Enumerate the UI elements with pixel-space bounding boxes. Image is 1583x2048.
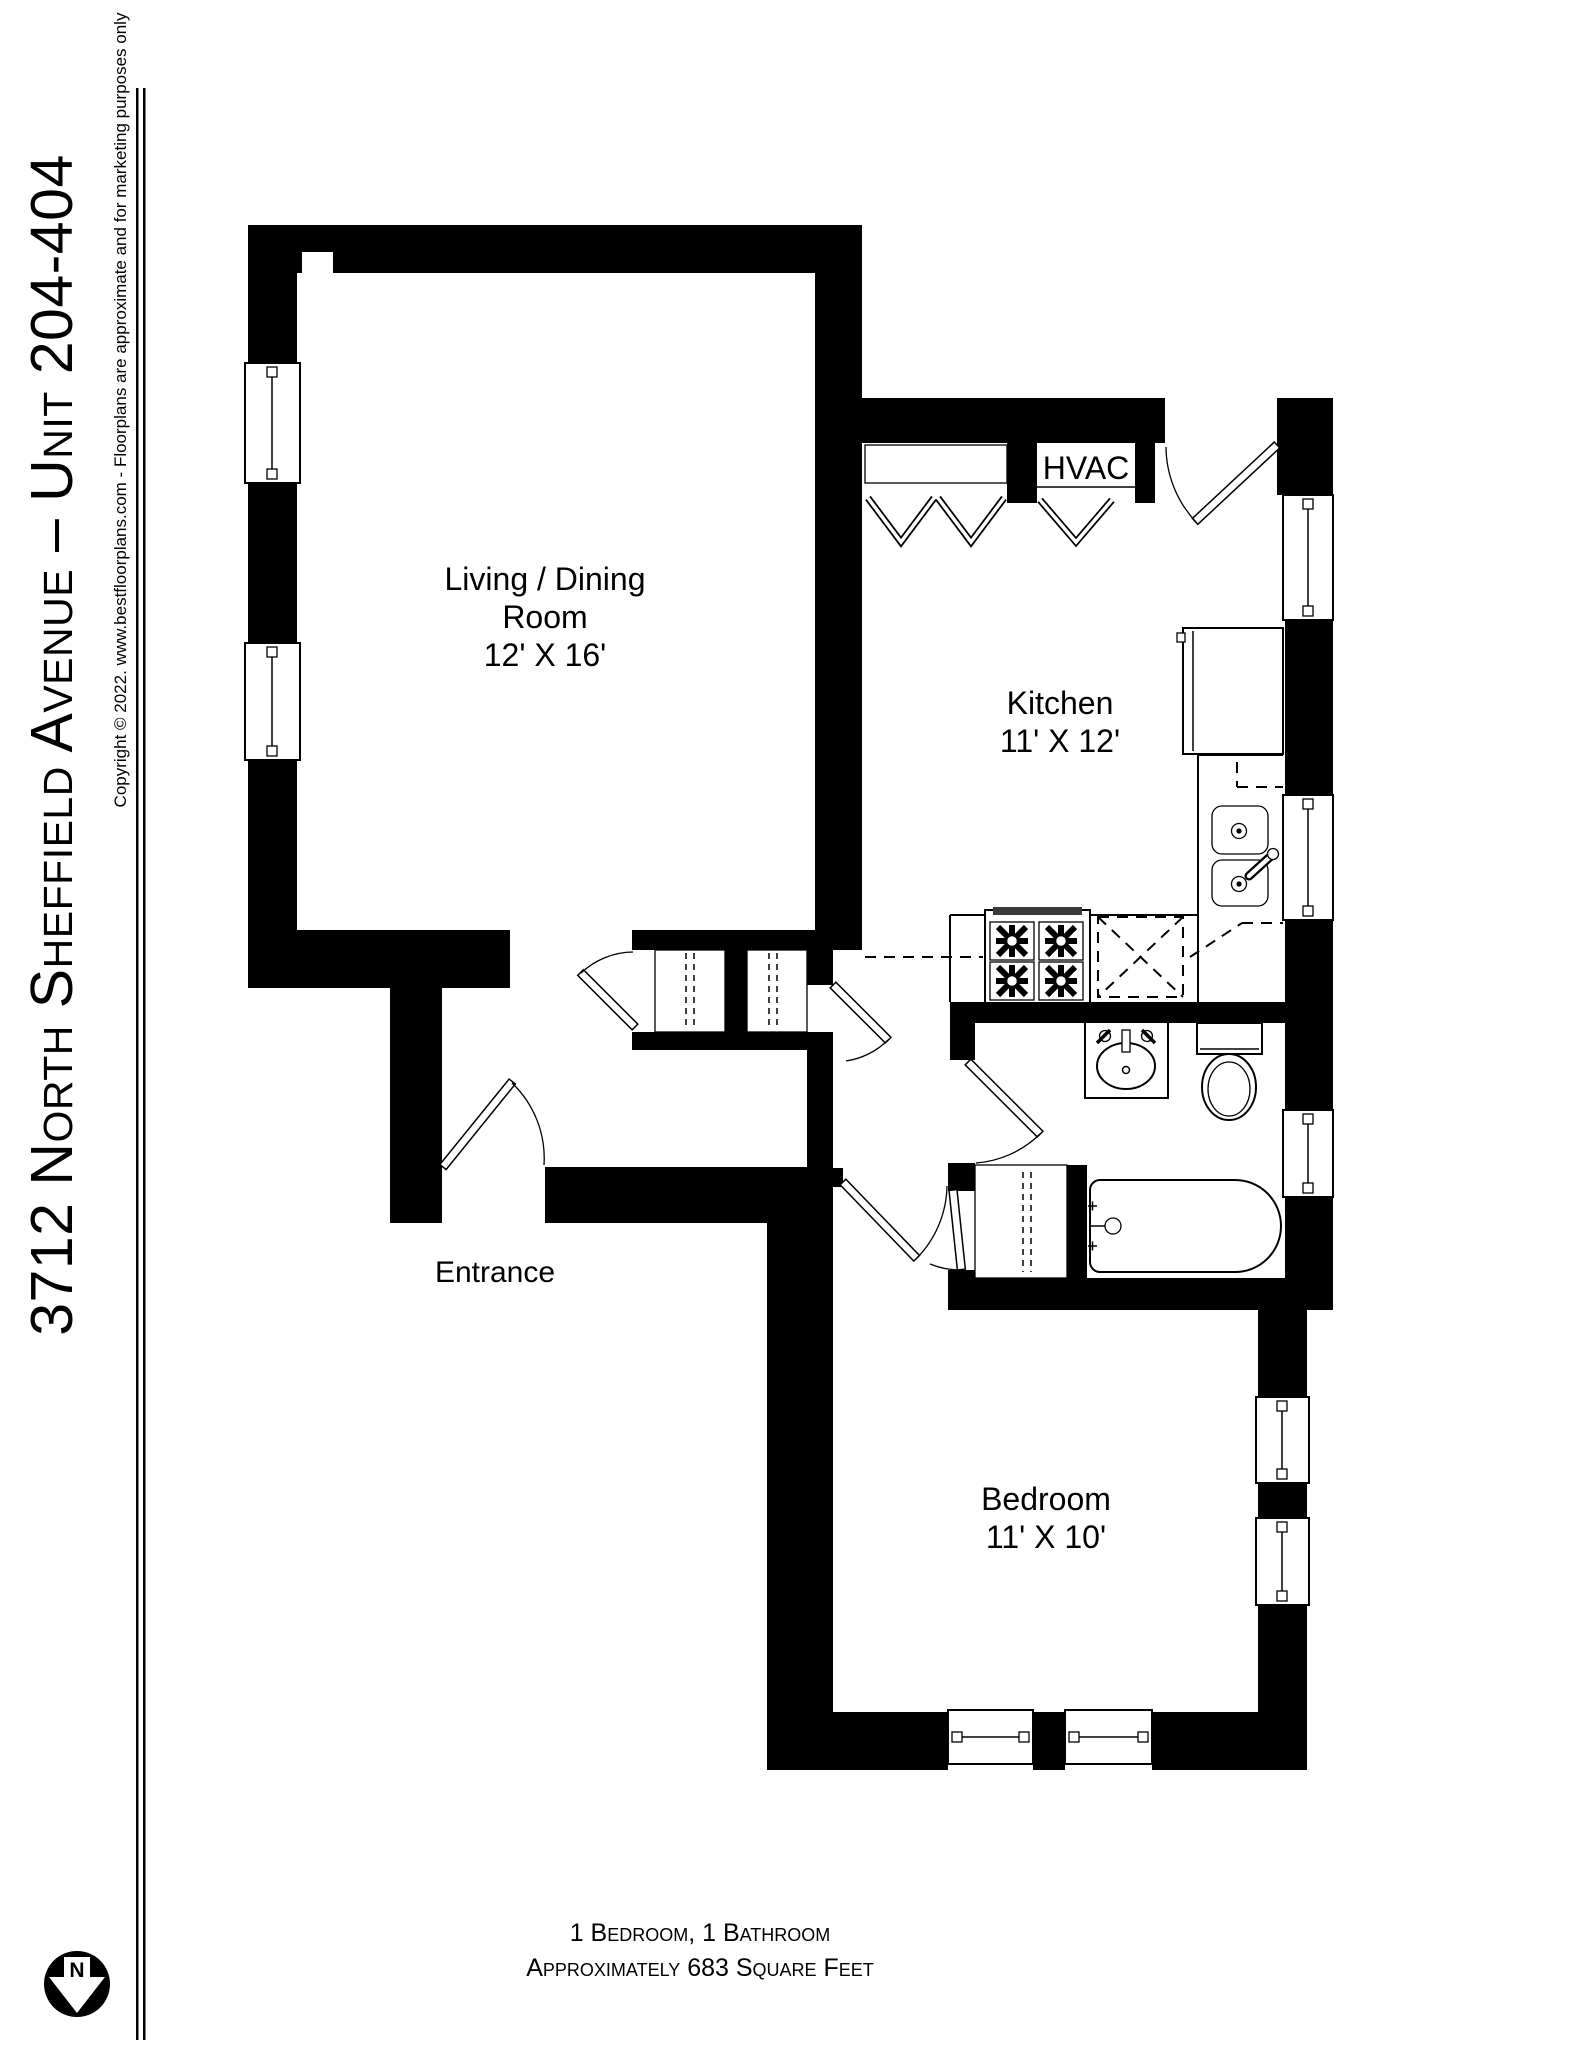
divider-rule xyxy=(136,88,139,2040)
burner xyxy=(1045,965,1077,997)
sidebar: 3712 North Sheffield Avenue – Unit 204-4… xyxy=(19,12,146,2040)
entrance-door xyxy=(440,1079,544,1170)
wall-notch xyxy=(302,252,333,274)
bathroom-door xyxy=(965,1059,1043,1163)
door-swing xyxy=(578,952,638,1030)
window xyxy=(1283,495,1333,620)
footer-area: Approximately 683 Square Feet xyxy=(526,1954,874,1982)
bifold-door xyxy=(868,498,1112,542)
window xyxy=(1065,1710,1152,1764)
bathtub xyxy=(1088,1180,1281,1272)
window xyxy=(245,363,300,483)
living-dining-label: Living / Dining xyxy=(445,561,646,597)
copyright-note: Copyright © 2022. www.bestfloorplans.com… xyxy=(111,12,130,807)
dishwasher xyxy=(1098,917,1183,997)
window xyxy=(948,1710,1033,1764)
window xyxy=(1256,1518,1309,1605)
refrigerator xyxy=(1177,628,1283,754)
burner xyxy=(996,925,1028,957)
living-dining-dimensions: 12' X 16' xyxy=(484,637,607,673)
bedroom-dimensions: 11' X 10' xyxy=(986,1519,1106,1555)
window xyxy=(1283,1110,1333,1197)
floor-plan-page: 3712 North Sheffield Avenue – Unit 204-4… xyxy=(0,0,1583,2048)
window xyxy=(245,643,300,760)
burner xyxy=(1045,925,1077,957)
bedroom-door xyxy=(840,1179,947,1261)
door-swing xyxy=(930,1190,965,1270)
divider-rule xyxy=(143,88,146,2040)
living-dining-label2: Room xyxy=(502,599,587,635)
north-arrow-label: N xyxy=(69,1959,84,1982)
vanity-sink xyxy=(1085,1022,1168,1098)
footer-summary: 1 Bedroom, 1 Bathroom xyxy=(570,1919,831,1947)
window xyxy=(1256,1397,1309,1483)
door-swing xyxy=(830,982,891,1061)
entrance-label: Entrance xyxy=(435,1256,555,1289)
bedroom-label: Bedroom xyxy=(981,1481,1111,1517)
kitchen-dimensions: 11' X 12' xyxy=(1000,723,1120,759)
kitchen-label: Kitchen xyxy=(1007,685,1114,721)
range xyxy=(985,907,1090,1003)
burner xyxy=(996,965,1028,997)
hvac-label: HVAC xyxy=(1043,450,1130,486)
north-arrow: N xyxy=(44,1951,110,2017)
window xyxy=(1283,795,1333,920)
kitchen-back-door xyxy=(1166,442,1280,524)
unit-title: 3712 North Sheffield Avenue – Unit 204-4… xyxy=(19,154,85,1336)
toilet xyxy=(1197,1023,1262,1120)
kitchen-sink xyxy=(1212,806,1279,906)
